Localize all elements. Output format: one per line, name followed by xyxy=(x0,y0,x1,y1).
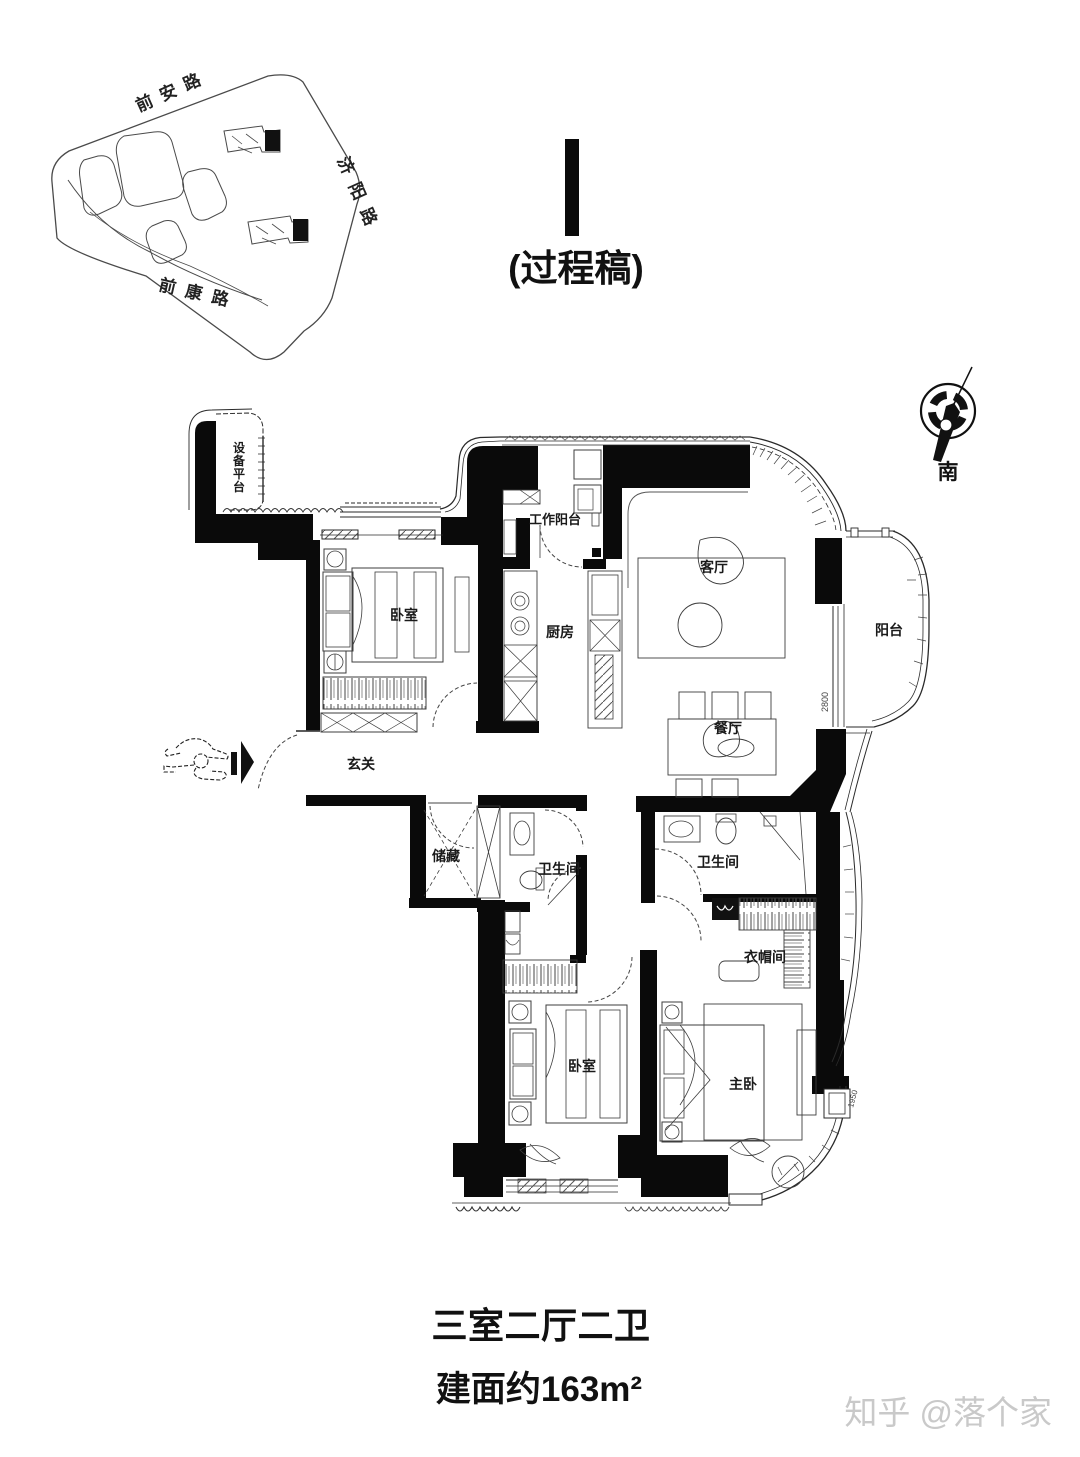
svg-text:卧室: 卧室 xyxy=(568,1058,596,1074)
svg-text:卫生间: 卫生间 xyxy=(538,861,580,877)
svg-text:餐厅: 餐厅 xyxy=(713,720,742,736)
svg-text:前安路: 前安路 xyxy=(132,66,211,116)
svg-text:工作阳台: 工作阳台 xyxy=(529,512,581,527)
svg-text:南: 南 xyxy=(938,460,959,484)
svg-text:储藏: 储藏 xyxy=(431,848,460,864)
svg-text:知乎 @落个家: 知乎 @落个家 xyxy=(844,1394,1052,1431)
svg-text:卧室: 卧室 xyxy=(390,607,418,623)
svg-text:主卧: 主卧 xyxy=(729,1076,757,1092)
svg-text:2800: 2800 xyxy=(820,692,830,712)
svg-text:三室二厅二卫: 三室二厅二卫 xyxy=(431,1305,650,1346)
svg-text:卫生间: 卫生间 xyxy=(697,854,739,870)
svg-text:建面约163m²: 建面约163m² xyxy=(436,1370,642,1409)
svg-text:(过程稿): (过程稿) xyxy=(508,248,644,289)
svg-text:玄关: 玄关 xyxy=(347,756,375,772)
svg-text:厨房: 厨房 xyxy=(546,624,574,640)
svg-text:设备平台: 设备平台 xyxy=(232,440,246,494)
svg-text:客厅: 客厅 xyxy=(699,559,728,575)
svg-text:衣帽间: 衣帽间 xyxy=(744,949,786,965)
svg-text:济阳路: 济阳路 xyxy=(333,153,385,238)
svg-text:阳台: 阳台 xyxy=(875,622,903,638)
svg-text:前康路: 前康路 xyxy=(157,274,240,312)
